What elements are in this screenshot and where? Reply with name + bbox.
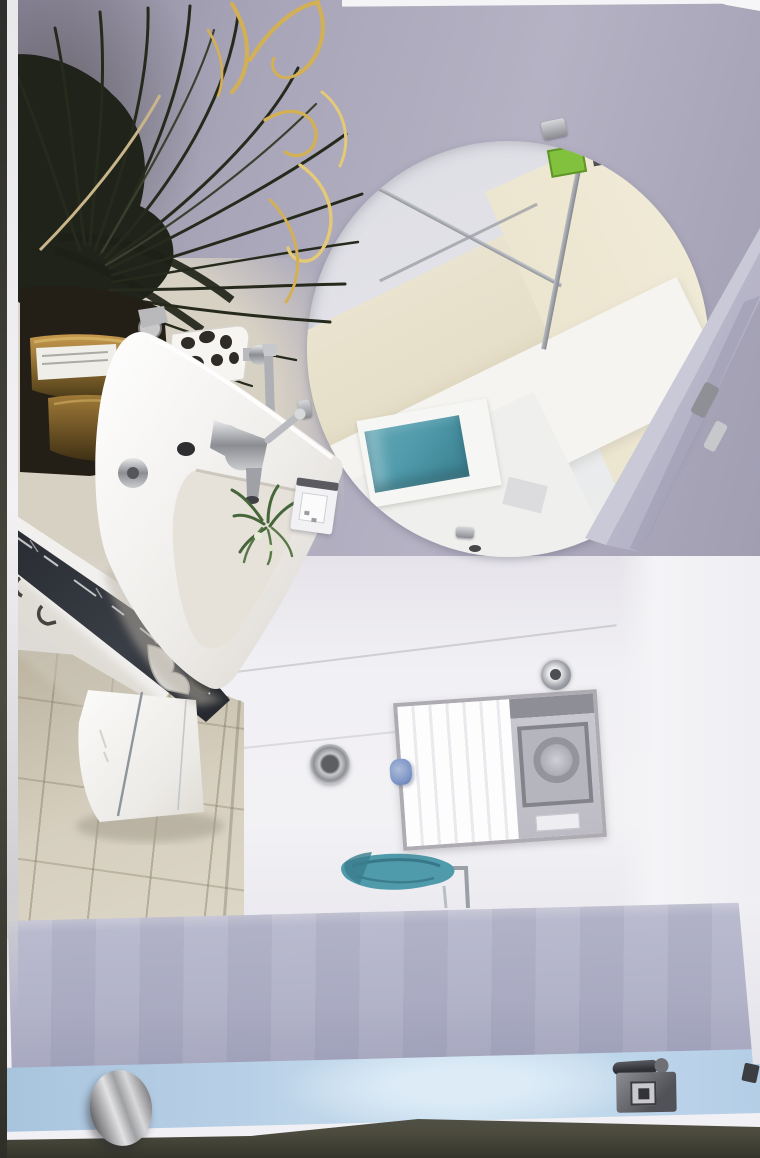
soap-pump [264,356,275,414]
soap-pump-nozzle [262,344,278,356]
ceiling-spotlight [541,660,571,690]
floor-drain [310,744,350,784]
washing-machine [509,693,603,839]
window-with-washer [393,689,607,851]
handle-core [638,1088,649,1099]
washer-door [517,722,593,808]
shower-door-edge [585,228,760,552]
light-switch [290,483,338,534]
tap-hole [177,442,195,456]
blue-flower [389,758,413,785]
spotlight-bulb [550,669,561,680]
bathroom-photo [0,0,760,1158]
board-edge-dark [0,0,7,1158]
washer-controls [535,812,580,831]
yellow-grass [208,2,346,302]
latch-handle [610,1055,690,1118]
switch-mark [311,518,317,523]
door-hinge [703,420,729,453]
teal-towel [341,852,468,908]
board-edge-white [7,0,18,1012]
switch-mark [304,511,310,516]
plant-pot-mass [12,54,173,322]
washer-door-ring [532,735,581,784]
handle-inner-square [630,1081,656,1105]
window-blinds [397,699,518,846]
handle-plate [616,1072,677,1113]
